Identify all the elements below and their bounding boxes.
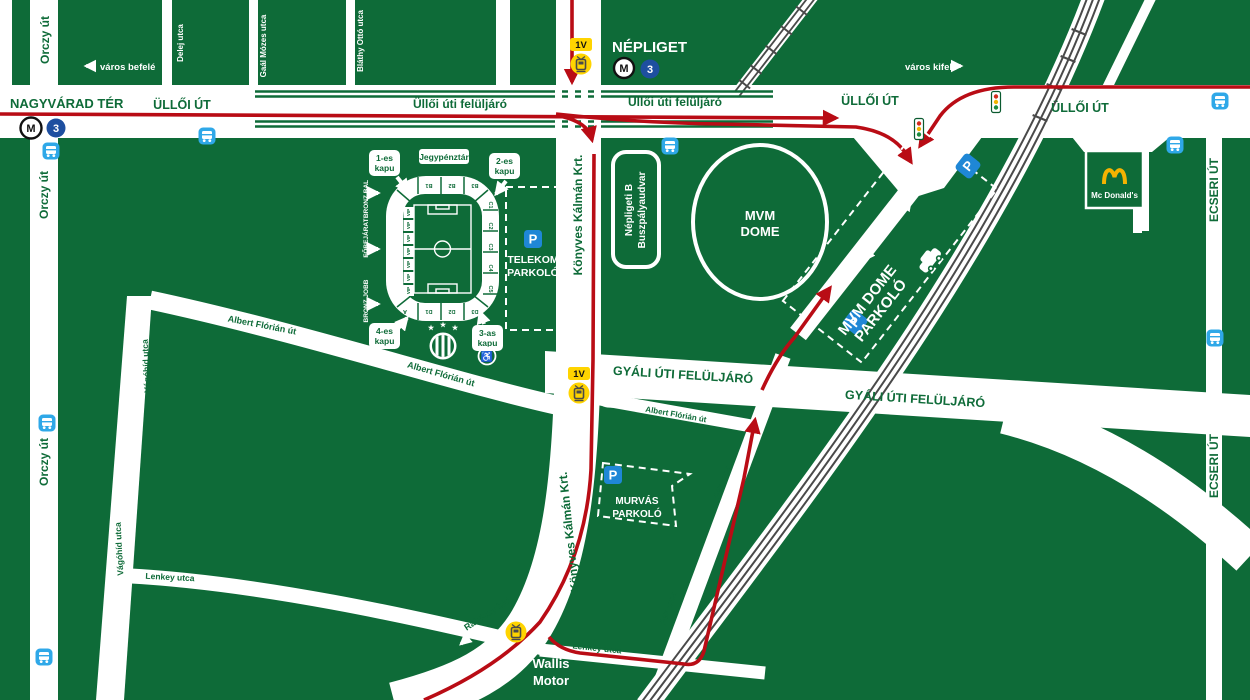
- parking-icon: P: [604, 466, 622, 484]
- metro-m-glyph: M: [619, 63, 628, 75]
- section-label: D3: [471, 308, 478, 314]
- road-gaal-mozes: [249, 0, 258, 86]
- svg-text:♿: ♿: [481, 350, 493, 363]
- tram-line-glyph: 1V: [575, 40, 587, 51]
- ulloi-ut-label: ÜLLŐI ÚT: [841, 93, 899, 108]
- ulloi-feluljaro-label: Üllői úti felüljáró: [628, 94, 722, 109]
- bus-stop-icon: [199, 128, 216, 145]
- gate-3-line2: kapu: [478, 338, 498, 348]
- telekom-line2: PARKOLÓ: [507, 266, 559, 279]
- gate-1-line1: 1-es: [376, 153, 393, 163]
- metro-line3-glyph: 3: [53, 123, 59, 135]
- parking-p-glyph: P: [609, 468, 618, 483]
- bus-stop-icon: [1167, 137, 1184, 154]
- traffic-light-icon: [992, 92, 1001, 113]
- section-label: C3: [487, 243, 493, 250]
- road-delej: [162, 0, 172, 86]
- bus-stop-icon: [39, 415, 56, 432]
- orczy-ut-label: Orczy út: [37, 171, 51, 219]
- nepliget-label: NÉPLIGET: [612, 39, 687, 56]
- section-label: B3: [471, 182, 478, 188]
- vip-label: VIP: [406, 287, 411, 294]
- bus-stop-icon: [36, 649, 53, 666]
- mcdonalds-label: Mc Donald's: [1091, 191, 1138, 200]
- parking-icon: P: [524, 230, 542, 248]
- road-blathy-otto: [346, 0, 355, 86]
- bus-station-line1: Népligeti B: [624, 184, 635, 236]
- bronz-jobb-label: BRONZ JOBB: [363, 279, 370, 322]
- section-label: C5: [487, 285, 493, 292]
- vip-label: VIP: [406, 209, 411, 216]
- orczy-ut-label: Orczy út: [37, 438, 51, 486]
- gate-4-line1: 4-es: [376, 326, 393, 336]
- section-label: D1: [425, 308, 432, 314]
- bus-stop-icon: [1207, 330, 1224, 347]
- murvas-line1: MURVÁS: [615, 494, 658, 507]
- mvm-dome-line1: MVM: [745, 208, 775, 223]
- outbound-label: város kifelé: [905, 62, 957, 73]
- telekom-line1: TELEKOM: [507, 254, 559, 266]
- ftc-crest-icon: [430, 333, 457, 360]
- blathy-otto-label: Bláthy Ottó utca: [356, 10, 365, 72]
- vip-boxes: VIP VIP VIP VIP VIP VIP VIP: [404, 207, 415, 296]
- metro-line3-icon: 3: [641, 60, 660, 79]
- ecseri-label: ECSERI ÚT: [1206, 433, 1221, 498]
- wallis-line1: Wallis: [532, 656, 569, 671]
- traffic-light-icon: [915, 119, 924, 140]
- vip-label: VIP: [406, 274, 411, 281]
- svg-text:★: ★: [428, 324, 435, 332]
- inbound-label: város befelé: [100, 62, 155, 73]
- road-top-edge: [0, 0, 12, 86]
- mcdonalds: Mc Donald's: [1086, 151, 1143, 208]
- section-label: B2: [448, 182, 455, 188]
- bus-stop-icon: [1212, 93, 1229, 110]
- section-label: A: [403, 308, 407, 314]
- vip-label: VIP: [406, 261, 411, 268]
- ulloi-ut-label: ÜLLŐI ÚT: [1051, 100, 1109, 115]
- gaal-mozes-label: Gaál Mózes utca: [259, 14, 268, 77]
- wallis-line2: Motor: [533, 673, 569, 688]
- section-label: D2: [448, 308, 455, 314]
- metro-m-icon: M: [614, 58, 634, 78]
- parking-p-glyph: P: [529, 232, 538, 247]
- ticket-office: Jegypénztár: [419, 149, 469, 164]
- transit-map: VIP VIP VIP VIP VIP VIP VIP B1 B2 B3 C1 …: [0, 0, 1250, 700]
- orczy-ut-label: Orczy út: [38, 16, 52, 64]
- murvas-line2: PARKOLÓ: [612, 507, 661, 520]
- ticket-office-label: Jegypénztár: [419, 152, 469, 162]
- mvm-dome-line2: DOME: [741, 224, 780, 239]
- nagyvarad-ter-label: NAGYVÁRAD TÉR: [10, 96, 124, 111]
- ecseri-label: ECSERI ÚT: [1206, 157, 1221, 222]
- gate-4-line2: kapu: [375, 336, 395, 346]
- gate-1-line2: kapu: [375, 163, 395, 173]
- gate-3-line1: 3-as: [479, 328, 496, 338]
- vip-label: VIP: [406, 248, 411, 255]
- konyves-label: Könyves Kálmán Krt.: [571, 155, 585, 276]
- bronz-bal-label: BRONZ BAL: [363, 180, 370, 218]
- metro-line3-icon: 3: [47, 119, 66, 138]
- vip-label: VIP: [406, 235, 411, 242]
- bus-stop-icon: [43, 143, 60, 160]
- tram-line-glyph: 1V: [573, 369, 585, 380]
- svg-text:★: ★: [452, 324, 459, 332]
- svg-text:★: ★: [440, 321, 447, 329]
- section-label: B1: [425, 182, 432, 188]
- delej-utca-label: Delej utca: [176, 24, 185, 62]
- metro-m-icon: M: [21, 118, 42, 139]
- ulloi-feluljaro-label: Üllői úti felüljáró: [413, 96, 507, 111]
- road-side-street: [496, 0, 510, 86]
- tram-icon: [506, 622, 527, 643]
- map-canvas: VIP VIP VIP VIP VIP VIP VIP B1 B2 B3 C1 …: [0, 0, 1250, 700]
- section-label: C2: [487, 222, 493, 229]
- section-label: C4: [487, 264, 493, 272]
- gate-2-line1: 2-es: [496, 156, 513, 166]
- metro-m-glyph: M: [26, 123, 35, 135]
- ulloi-ut-label: ÜLLŐI ÚT: [153, 97, 211, 112]
- gate-2-line2: kapu: [495, 166, 515, 176]
- section-label: C1: [487, 201, 493, 208]
- tram-icon: [571, 54, 592, 75]
- tram-icon: [569, 383, 590, 404]
- bus-station-line2: Buszpályaudvar: [637, 172, 648, 249]
- fobejarat-label: FŐBEJÁRAT: [361, 218, 370, 257]
- vip-label: VIP: [406, 222, 411, 229]
- metro-line3-glyph: 3: [647, 64, 653, 76]
- bus-stop-icon: [662, 138, 679, 155]
